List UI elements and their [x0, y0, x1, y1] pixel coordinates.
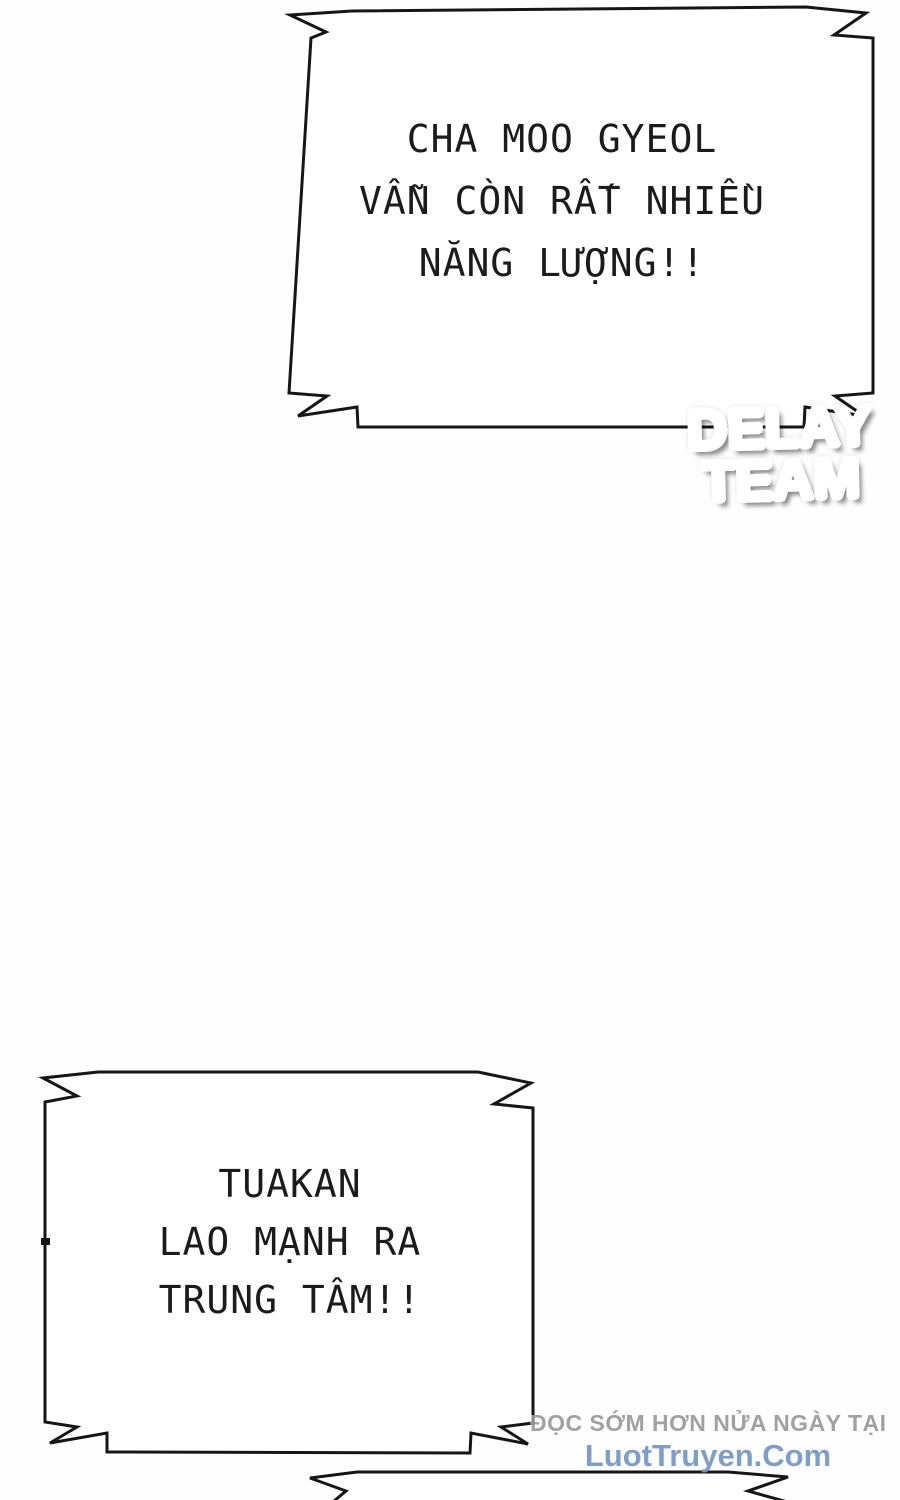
watermark: ĐỌC SỚM HƠN NỬA NGÀY TẠI LuotTruyen.Com [530, 1410, 886, 1474]
watermark-site-name: LuotTruyen.Com [530, 1438, 886, 1474]
speech-bubble-1-text: CHA MOO GYEOL VẪN CÒN RẤT NHIỀU NĂNG LƯỢ… [312, 108, 812, 294]
delay-team-logo: DELAY TEAM [671, 399, 890, 509]
speech-bubble-2-text: TUAKAN LAO MẠNH RA TRUNG TÂM!! [45, 1155, 535, 1329]
speech-line: CHA MOO GYEOL [312, 108, 812, 170]
speech-bubble-3-shape [310, 1472, 802, 1500]
logo-line-team: TEAM [672, 451, 889, 509]
speech-line: TRUNG TÂM!! [45, 1271, 535, 1329]
logo-letter-red: M [813, 446, 861, 510]
watermark-tagline: ĐỌC SỚM HƠN NỬA NGÀY TẠI [530, 1410, 886, 1437]
speech-line: TUAKAN [45, 1155, 535, 1213]
comic-page: CHA MOO GYEOL VẪN CÒN RẤT NHIỀU NĂNG LƯỢ… [0, 0, 900, 1500]
speech-line: NĂNG LƯỢNG!! [312, 232, 812, 294]
logo-letters-dark: TEA [701, 447, 815, 513]
speech-line: LAO MẠNH RA [45, 1213, 535, 1271]
speech-line: VẪN CÒN RẤT NHIỀU [312, 170, 812, 232]
